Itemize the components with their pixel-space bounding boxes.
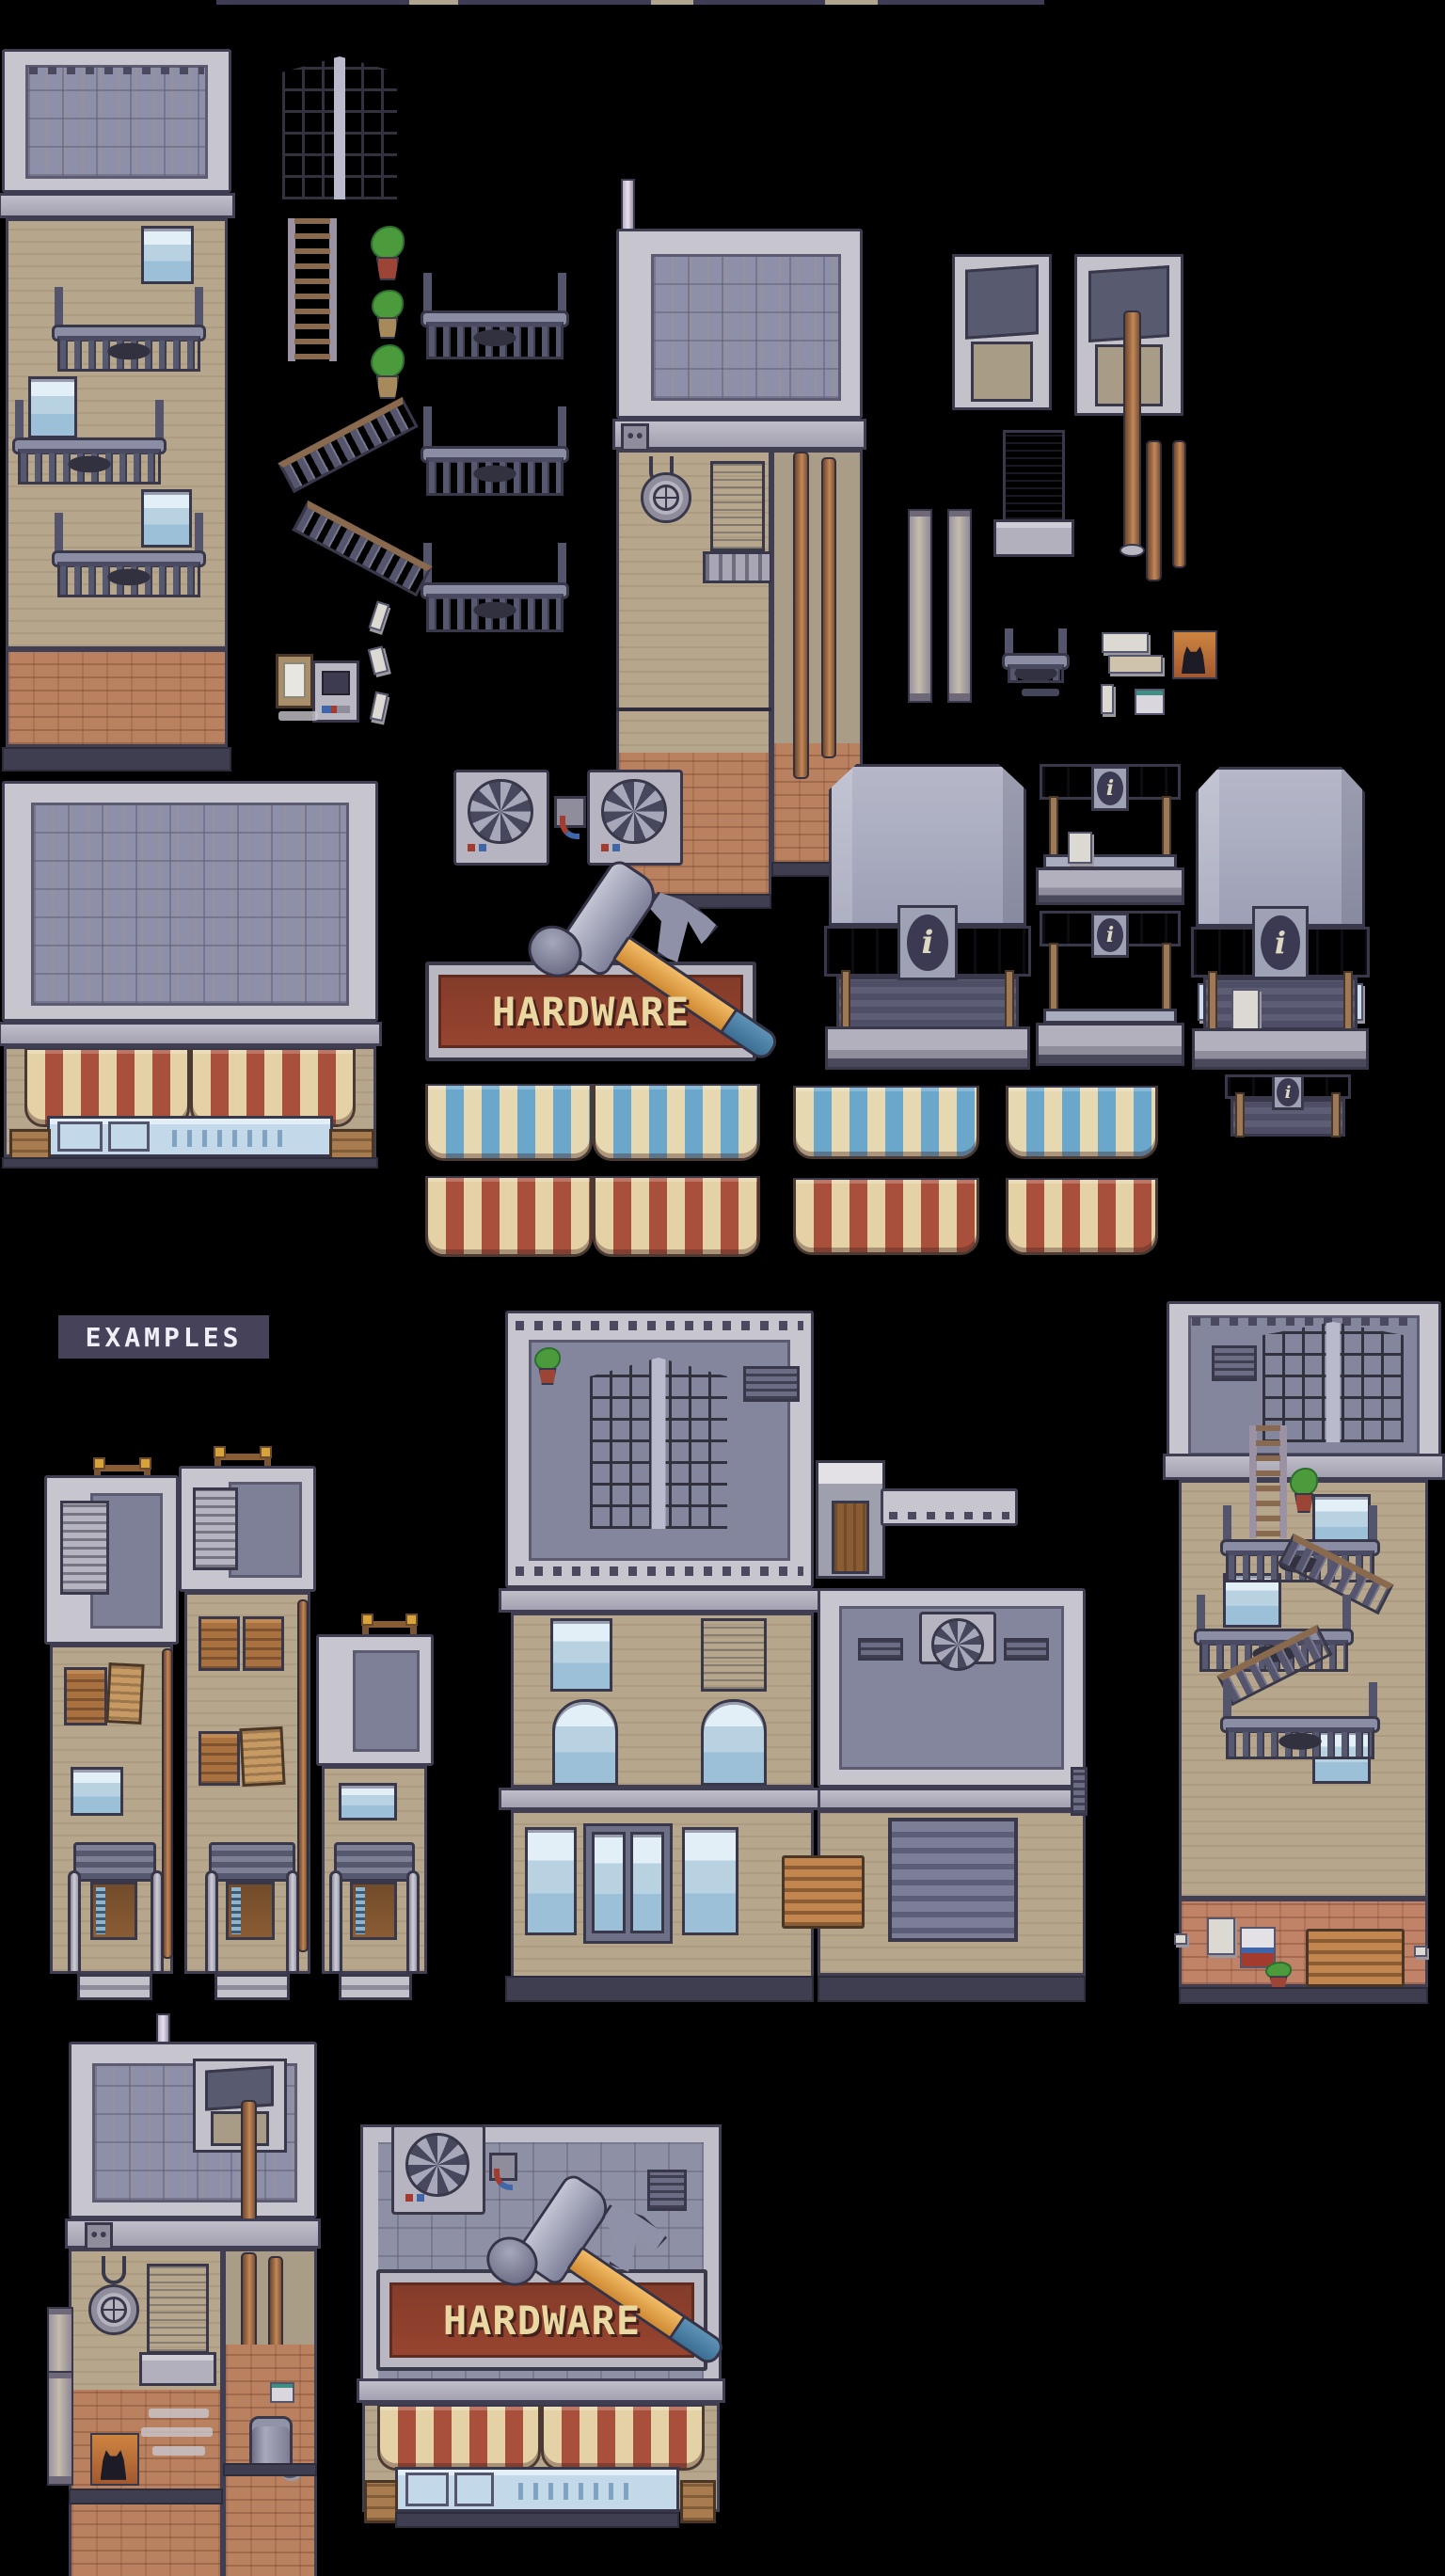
roof-panel (353, 1650, 420, 1752)
open-shutter (105, 1662, 144, 1725)
example-row-houses (24, 1444, 434, 2004)
kiosk-wood-post (1049, 943, 1058, 1014)
examples-label-text: EXAMPLES (86, 1322, 243, 1353)
fire-escape-balcony (55, 287, 203, 372)
tall-window (147, 2264, 209, 2354)
tile-info-kiosk-back: i (1225, 1074, 1351, 1144)
tile-litter-scrap (369, 601, 390, 632)
dormer-lower (211, 2111, 269, 2147)
tile-paper-scrap (1101, 684, 1114, 714)
awning-scallop (377, 2405, 541, 2471)
tower-cornice (499, 1588, 820, 1613)
title-pixel-segment (458, 0, 651, 5)
roof-panel (229, 1482, 302, 1578)
roof-dormer (193, 2059, 287, 2153)
info-icon: i (1261, 915, 1300, 970)
upper-window (550, 1618, 612, 1692)
stoop-canopy (334, 1842, 415, 1882)
kiosk-wood-post (1343, 971, 1353, 1031)
tile-downspout (908, 509, 932, 703)
info-icon: i (907, 914, 948, 971)
wall-hook (102, 2256, 126, 2284)
kiosk-base (1036, 1023, 1184, 1066)
shop-door (454, 2473, 494, 2506)
title-pixel-segment (216, 0, 409, 5)
roof-vent (1004, 1638, 1049, 1661)
downpipe (162, 1648, 173, 1959)
stoop-steps (77, 1974, 152, 2000)
base-strip (1179, 1987, 1428, 2004)
store-pipe-valve (489, 2153, 517, 2181)
tile-small-balcony (1005, 628, 1067, 683)
awning-scallop (593, 1176, 760, 1257)
house3-door (350, 1882, 397, 1940)
fire-escape-balcony (15, 400, 164, 485)
kiosk-info-sign: i (897, 905, 958, 980)
tile-newspapers (1102, 632, 1149, 653)
door-glass (592, 1832, 626, 1933)
tile-potted-plant (369, 290, 406, 339)
side-vent (1071, 1767, 1088, 1816)
newspapers-on-counter (1068, 832, 1092, 864)
house3-window (339, 1783, 397, 1821)
roof-inner-panel (651, 254, 841, 401)
awning-scallop (425, 1084, 593, 1161)
roof-plant (532, 1347, 564, 1385)
sprite-sheet: HARDWARE i i i (0, 0, 1445, 2576)
street-band (499, 1788, 820, 1810)
cropped-title-bottom-edge (216, 0, 1044, 5)
metal-scraps (1022, 689, 1059, 696)
graffiti (149, 2409, 209, 2418)
annex-band (818, 1788, 1086, 1810)
roof-vent-grate (743, 1366, 800, 1402)
dormer-pane (965, 264, 1039, 339)
wall-poster (1207, 1917, 1235, 1955)
house1-roof (44, 1475, 179, 1645)
fire-escape-balcony (1223, 1682, 1377, 1759)
clipboard-paper (283, 662, 306, 698)
pipe-drip (1119, 544, 1145, 557)
tile-awning-blue-wide (425, 1084, 760, 1161)
roof-corner-glass (590, 1358, 727, 1529)
rooftop-ac-unit (60, 1501, 109, 1595)
awning-scallop (541, 2405, 705, 2471)
store-cornice (357, 2378, 725, 2403)
open-shutter (239, 1726, 285, 1787)
counter-shelf (1043, 1009, 1177, 1024)
house2-door (226, 1882, 275, 1940)
mini-vent-box (270, 2382, 294, 2403)
tile-downspout (947, 509, 972, 703)
kiosk-dome (829, 764, 1026, 926)
tile-litter-scrap (368, 645, 389, 675)
tile-litter-scrap (370, 692, 389, 722)
rusty-pipe (793, 452, 809, 779)
sign-text: HARDWARE (492, 989, 690, 1035)
tile-stairs-down-left (278, 397, 418, 493)
door-glass (630, 1832, 664, 1933)
tile-balcony-railing (423, 406, 566, 496)
info-icon: i (1097, 918, 1123, 952)
house2-roof (179, 1466, 316, 1592)
tile-ticket-machine (312, 660, 359, 723)
door-sidelight (356, 1887, 365, 1934)
store-awning (377, 2405, 705, 2471)
tile-potted-plant (367, 226, 408, 280)
junction-box (621, 423, 649, 452)
roof-slab (616, 229, 863, 419)
dentil-row (889, 1512, 1009, 1519)
tower-footer (505, 1976, 814, 2002)
kiosk-wood-post (1162, 943, 1171, 1014)
kiosk-base (1192, 1028, 1369, 1070)
shop-windows (47, 1116, 333, 1157)
window-planter (139, 2352, 216, 2386)
shuttered-window (64, 1667, 107, 1725)
title-pixel-segment (409, 0, 458, 5)
kiosk-info-sign: i (1252, 906, 1309, 979)
kiosk-wood-post (1005, 970, 1014, 1030)
bench (1306, 1929, 1405, 1987)
wood-crate (680, 2480, 716, 2523)
tile-awning-blue (1006, 1086, 1158, 1159)
upper-window-blind (701, 1618, 767, 1692)
door-sidelight (96, 1887, 105, 1934)
tile-awning-red-wide (425, 1176, 760, 1257)
fridge-door (405, 2473, 449, 2506)
tile-awning-red (793, 1178, 979, 1255)
hut-wood-door (832, 1501, 869, 1574)
base-strip (69, 2489, 223, 2504)
tile-stairs-down-right (292, 501, 432, 596)
kiosk-wood-post (1208, 971, 1217, 1031)
dentil-row (1192, 1317, 1416, 1326)
shop-window (525, 1827, 577, 1935)
example-fire-escape-apartment (1167, 1301, 1441, 2004)
house1-window (71, 1767, 123, 1816)
tall-window (710, 461, 765, 551)
dentil-row (516, 1566, 803, 1576)
entry-doors (583, 1823, 673, 1944)
store-vent-box (647, 2170, 687, 2211)
store-shop-windows (395, 2467, 679, 2512)
porthole-window (641, 472, 691, 523)
tile-rusty-pipe (1172, 440, 1186, 568)
base-strip (395, 2512, 679, 2528)
kiosk-wood-post (1235, 1092, 1245, 1137)
cat-poster (90, 2433, 139, 2486)
brick-base (6, 649, 228, 747)
roof-access-hut (816, 1460, 885, 1579)
dormer-lower-panel (971, 342, 1033, 402)
roof-slab (2, 49, 231, 193)
tile-info-kiosk-large-posters: i (1196, 767, 1365, 1070)
tile-awning-red (1006, 1178, 1158, 1255)
base-strip-left (616, 708, 771, 711)
annex-parapet (881, 1488, 1018, 1526)
tile-apartment-fire-escape-building (2, 49, 231, 723)
bench (782, 1855, 865, 1929)
dormer-pipe (241, 2100, 257, 2222)
kiosk-counter-area (1203, 978, 1358, 1030)
title-pixel-segment (651, 0, 693, 5)
pipe-through-dormer (1123, 310, 1141, 550)
dormer-pane (205, 2065, 274, 2110)
shuttered-window (243, 1616, 284, 1671)
window (141, 226, 194, 284)
kiosk-info-sign: i (1091, 766, 1129, 811)
window-planter (703, 551, 772, 583)
window-scribbles (518, 2483, 629, 2500)
stoop-railing (406, 1870, 420, 1974)
tile-mini-vent-box (1135, 689, 1165, 715)
garage-door (888, 1818, 1018, 1942)
cornice (0, 193, 235, 218)
tile-black-cat-poster (1172, 630, 1217, 679)
info-icon: i (1097, 771, 1123, 805)
newspapers-stack (1231, 989, 1260, 1030)
info-icon: i (1277, 1078, 1299, 1106)
dentil-row (516, 1321, 803, 1330)
kiosk-wood-post (1331, 1092, 1341, 1137)
downspout (47, 2371, 73, 2486)
kiosk-wood-post (841, 970, 850, 1030)
hammer-grip (668, 2314, 727, 2367)
example-porthole-building (47, 2013, 320, 2504)
stoop-railing (68, 1870, 81, 1974)
tile-potted-plant (367, 344, 408, 399)
shop-door (108, 1121, 150, 1152)
tile-notice-clipboard (276, 654, 313, 708)
house1-door (90, 1882, 137, 1940)
street-plant (1262, 1962, 1294, 1990)
arched-window (701, 1699, 767, 1786)
kiosk-info-sign: i (1091, 913, 1129, 958)
cornice (0, 1022, 382, 1046)
shop-window (682, 1827, 738, 1935)
tile-tall-window (1003, 430, 1065, 522)
roof-ac-unit (919, 1612, 996, 1664)
machine-buttons (322, 706, 350, 713)
base-strip (2, 1157, 378, 1169)
roof-dentils (29, 67, 204, 74)
tile-corner-glass-stairwell (282, 56, 397, 199)
example-corner-building (493, 1308, 1091, 2004)
stoop-steps (339, 1974, 412, 2000)
tile-dormer-skylight (952, 254, 1052, 410)
litter (1174, 1933, 1187, 1945)
shuttered-window (198, 1731, 240, 1786)
tile-balcony-railing (423, 543, 566, 632)
pavement-smudge (278, 711, 318, 721)
stoop-canopy (73, 1842, 156, 1882)
kiosk-info-sign: i (1272, 1074, 1304, 1110)
roof-inner-panel (25, 65, 208, 179)
tile-ac-fan-unit (453, 770, 549, 866)
stoop-railing (329, 1870, 342, 1974)
junction-box (85, 2222, 113, 2250)
kiosk-counter-area (836, 977, 1019, 1029)
wood-crate (364, 2480, 398, 2523)
base-strip (2, 747, 231, 771)
tile-info-kiosk-large: i (829, 764, 1026, 1070)
awning-scallop (593, 1084, 760, 1161)
stoop-canopy (209, 1842, 295, 1882)
kiosk-wood-post (1049, 796, 1058, 862)
awning-scallop (425, 1176, 593, 1257)
stoop-steps (214, 1974, 290, 2000)
fridge-door (57, 1121, 103, 1152)
store-ac-fan (391, 2124, 485, 2215)
tile-porthole-building (616, 179, 863, 723)
kiosk-base (1036, 867, 1184, 905)
rooftop-ac-unit (193, 1487, 238, 1570)
tile-awning-blue (793, 1086, 979, 1159)
annex-footer (818, 1976, 1086, 2002)
shuttered-window (198, 1616, 240, 1671)
tile-pipe-valve (554, 796, 586, 828)
graffiti (152, 2446, 205, 2456)
examples-label: EXAMPLES (58, 1315, 269, 1359)
roof-vent-box (1212, 1345, 1257, 1381)
hammer-grip (720, 1008, 782, 1063)
litter (1414, 1946, 1427, 1957)
arched-window (552, 1699, 618, 1786)
stoop-railing (205, 1870, 218, 1974)
window-scribbles (172, 1130, 285, 1147)
rusty-pipe (821, 457, 836, 758)
title-pixel-segment (693, 0, 825, 5)
roof-inner-panel (31, 803, 349, 1006)
title-pixel-segment (825, 0, 878, 5)
cornice (612, 419, 866, 450)
title-pixel-segment (878, 0, 1044, 5)
kiosk-wood-post (1162, 796, 1171, 862)
downpipe (297, 1599, 309, 1952)
tile-planter-box (993, 519, 1074, 557)
tile-balcony-railing (423, 273, 566, 359)
kiosk-base (825, 1026, 1030, 1070)
machine-screen (322, 671, 350, 695)
base-strip-right (223, 2463, 317, 2476)
graffiti (141, 2427, 213, 2437)
tile-info-kiosk-counter: i (1040, 764, 1181, 905)
door-sidelight (231, 1887, 241, 1934)
annex-roof (818, 1588, 1086, 1788)
house3-roof (316, 1634, 434, 1766)
fire-escape-balcony (55, 513, 203, 597)
tile-info-kiosk-counter: i (1040, 911, 1181, 1066)
storefront-roof (2, 781, 378, 1022)
tile-rusty-pipe (1146, 440, 1162, 581)
sign-text: HARDWARE (443, 2298, 641, 2344)
roof-corner-glass (1262, 1322, 1404, 1442)
porthole-window (88, 2284, 139, 2335)
roof-vent (858, 1638, 903, 1661)
tile-newspapers (1108, 655, 1163, 674)
example-hardware-store: HARDWARE (360, 2124, 722, 2528)
kiosk-dome (1196, 767, 1365, 927)
tile-large-storefront (2, 781, 378, 1169)
tile-ladder (288, 218, 337, 361)
